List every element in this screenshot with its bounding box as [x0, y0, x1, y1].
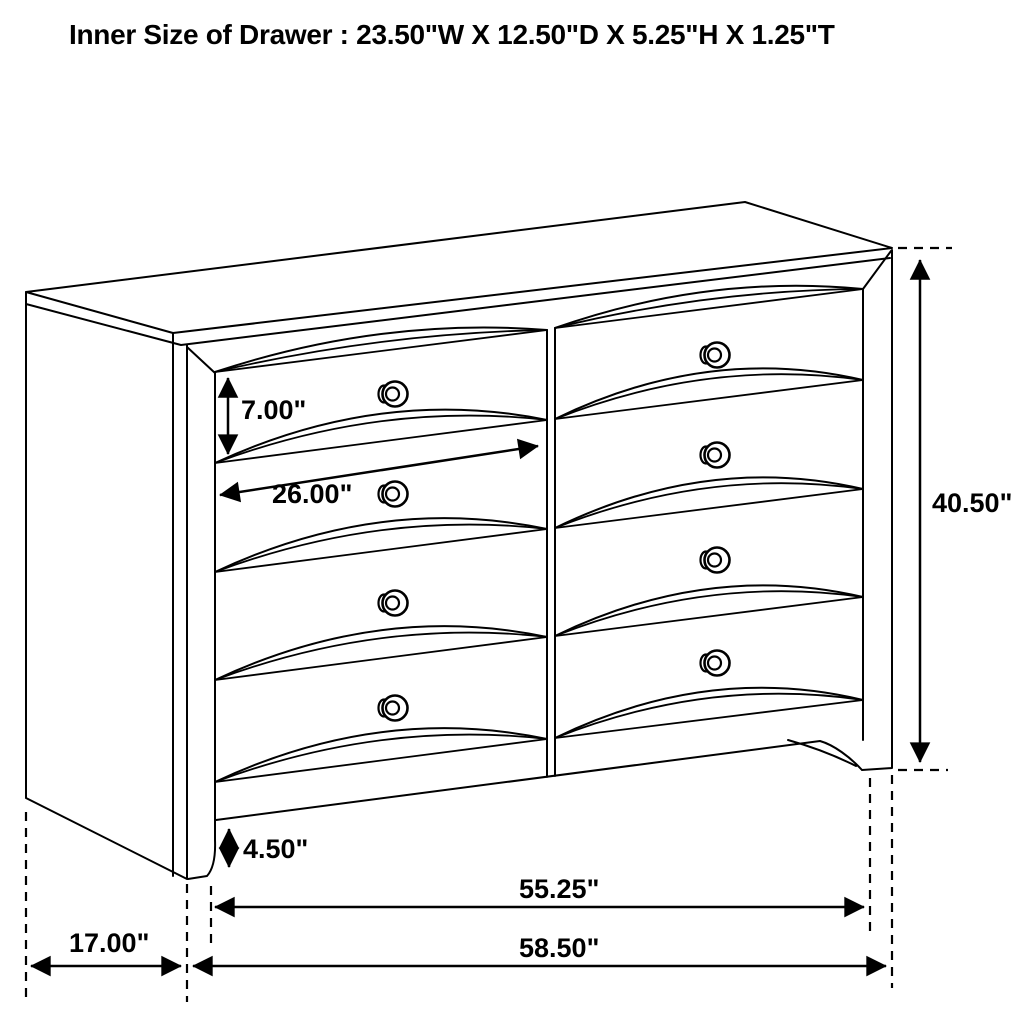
dimension-label: 26.00" — [272, 479, 352, 509]
dimension-label: 17.00" — [69, 928, 149, 958]
dimension-label: 4.50" — [243, 834, 308, 864]
knob-icon — [701, 443, 730, 468]
dimension-label: 7.00" — [241, 395, 306, 425]
knob-icon — [701, 651, 730, 676]
knob-icon — [701, 548, 730, 573]
knob-icon — [379, 591, 408, 616]
dimension-label: 40.50" — [932, 488, 1012, 518]
knob-icon — [701, 343, 730, 368]
diagram-canvas: Inner Size of Drawer : 23.50"W X 12.50"D… — [0, 0, 1024, 1024]
page-title: Inner Size of Drawer : 23.50"W X 12.50"D… — [69, 19, 835, 50]
knob-icon — [379, 482, 408, 507]
dimension-label: 55.25" — [519, 874, 599, 904]
background — [0, 0, 1024, 1024]
knob-icon — [379, 382, 408, 407]
dresser-dimension-diagram: Inner Size of Drawer : 23.50"W X 12.50"D… — [0, 0, 1024, 1024]
knob-icon — [379, 696, 408, 721]
dimension-label: 58.50" — [519, 933, 599, 963]
